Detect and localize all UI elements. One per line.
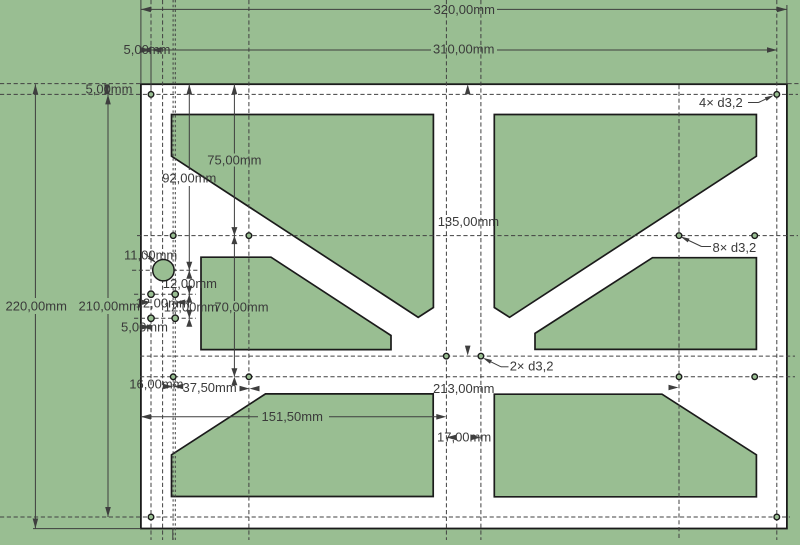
- svg-text:8× d3,2: 8× d3,2: [713, 240, 757, 255]
- svg-text:17,00mm: 17,00mm: [437, 429, 491, 444]
- svg-text:2× d3,2: 2× d3,2: [510, 359, 554, 374]
- svg-text:220,00mm: 220,00mm: [6, 299, 67, 314]
- svg-text:5,00mm: 5,00mm: [124, 42, 171, 57]
- svg-text:92,00mm: 92,00mm: [162, 170, 216, 185]
- svg-text:151,50mm: 151,50mm: [262, 409, 323, 424]
- svg-text:5,00mm: 5,00mm: [121, 319, 168, 334]
- svg-text:11,00mm: 11,00mm: [124, 248, 177, 263]
- svg-text:213,00mm: 213,00mm: [433, 381, 494, 396]
- svg-text:5,00mm: 5,00mm: [86, 82, 133, 97]
- svg-text:75,00mm: 75,00mm: [207, 153, 261, 168]
- svg-text:135,00mm: 135,00mm: [438, 214, 499, 229]
- svg-text:4× d3,2: 4× d3,2: [699, 95, 743, 110]
- svg-text:70,00mm: 70,00mm: [214, 299, 268, 314]
- svg-text:310,00mm: 310,00mm: [433, 42, 494, 57]
- svg-text:210,00mm: 210,00mm: [79, 299, 140, 314]
- svg-text:12,00mm: 12,00mm: [164, 299, 218, 314]
- svg-text:320,00mm: 320,00mm: [434, 2, 495, 17]
- svg-text:37,50mm: 37,50mm: [183, 380, 237, 395]
